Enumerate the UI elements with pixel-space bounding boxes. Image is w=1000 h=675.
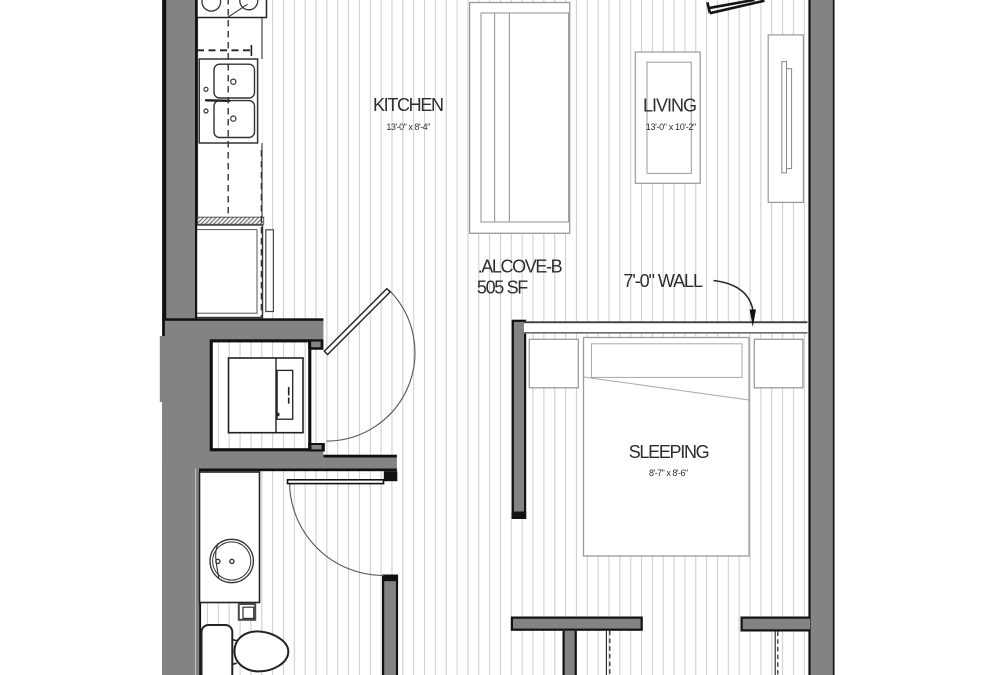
svg-text:505 SF: 505 SF — [477, 278, 528, 298]
svg-text:7'-0" WALL: 7'-0" WALL — [623, 271, 703, 291]
svg-text:LIVING: LIVING — [643, 96, 697, 116]
svg-text:KITCHEN: KITCHEN — [373, 95, 444, 115]
svg-text:.ALCOVE-B: .ALCOVE-B — [478, 257, 563, 277]
svg-text:13'-0" x 8'-4": 13'-0" x 8'-4" — [386, 122, 430, 132]
svg-text:13'-0" x 10'-2": 13'-0" x 10'-2" — [646, 122, 696, 132]
svg-text:SLEEPING: SLEEPING — [629, 442, 710, 462]
svg-text:8'-7" x 8'-6": 8'-7" x 8'-6" — [649, 468, 688, 478]
